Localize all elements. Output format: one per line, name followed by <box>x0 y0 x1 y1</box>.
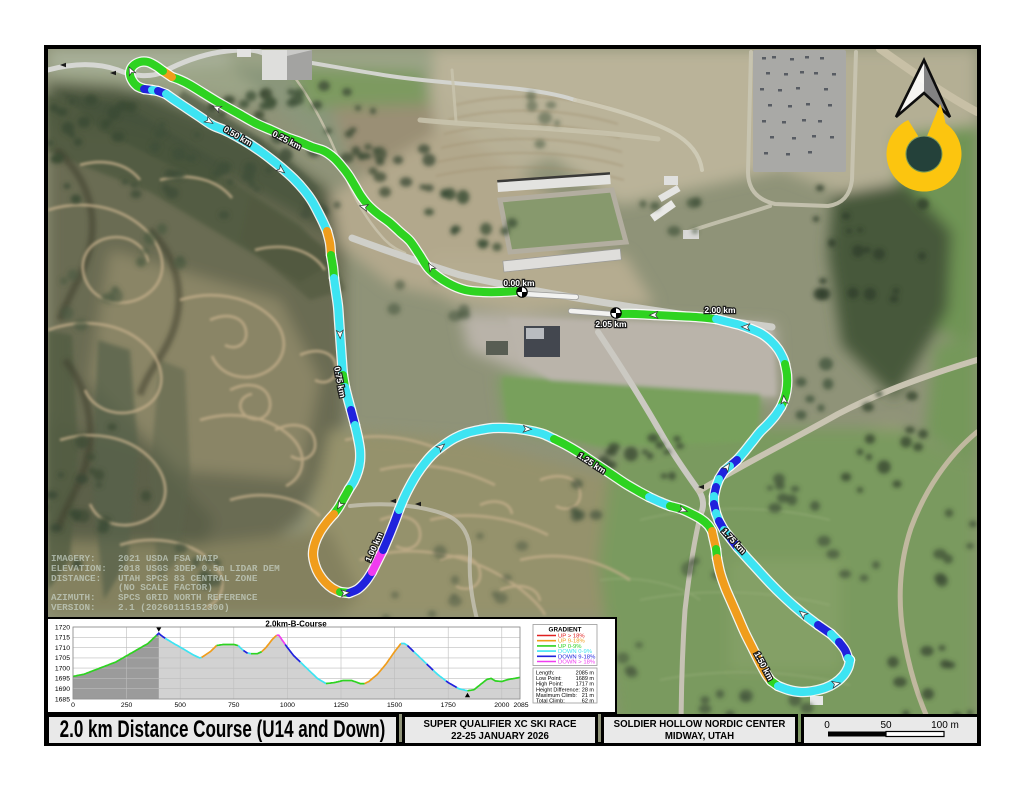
svg-text:GRADIENT: GRADIENT <box>549 627 582 634</box>
svg-text:1710: 1710 <box>55 645 70 652</box>
svg-text:0: 0 <box>71 702 75 709</box>
svg-text:1715: 1715 <box>55 635 70 642</box>
svg-text:50: 50 <box>880 720 892 731</box>
svg-text:2.00 km: 2.00 km <box>704 305 736 315</box>
svg-text:1750: 1750 <box>441 702 456 709</box>
svg-text:0: 0 <box>824 720 830 731</box>
svg-text:1695: 1695 <box>55 676 70 683</box>
svg-text:250: 250 <box>121 702 133 709</box>
svg-text:2085: 2085 <box>513 702 528 709</box>
svg-text:1720: 1720 <box>55 624 70 631</box>
svg-text:Total Climb:: Total Climb: <box>536 699 565 705</box>
svg-text:500: 500 <box>175 702 187 709</box>
svg-text:1690: 1690 <box>55 686 70 693</box>
svg-text:2.05 km: 2.05 km <box>595 319 627 329</box>
svg-text:1000: 1000 <box>280 702 295 709</box>
svg-text:0.00 km: 0.00 km <box>503 278 535 288</box>
svg-text:750: 750 <box>228 702 240 709</box>
svg-text:1250: 1250 <box>333 702 348 709</box>
svg-text:62 m: 62 m <box>582 699 595 705</box>
svg-text:100 m: 100 m <box>931 720 959 731</box>
svg-text:1705: 1705 <box>55 655 70 662</box>
svg-text:1500: 1500 <box>387 702 402 709</box>
svg-text:1700: 1700 <box>55 665 70 672</box>
svg-text:1685: 1685 <box>55 696 70 703</box>
svg-text:2000: 2000 <box>494 702 509 709</box>
svg-text:DOWN > 18%: DOWN > 18% <box>558 660 596 666</box>
